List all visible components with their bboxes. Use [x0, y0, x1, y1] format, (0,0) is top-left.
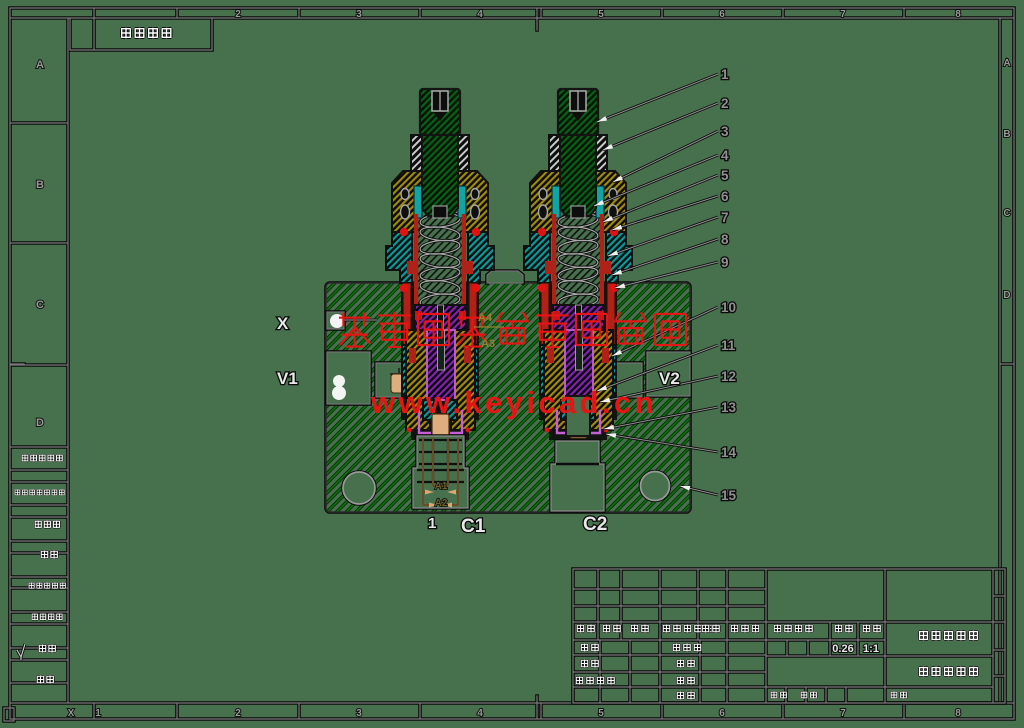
svg-text:13: 13 [721, 400, 737, 415]
svg-text:www.keyicad.cn: www.keyicad.cn [370, 385, 657, 420]
svg-text:4: 4 [721, 148, 729, 163]
svg-text:1: 1 [428, 515, 436, 532]
svg-text:C: C [36, 299, 44, 311]
svg-text:X: X [68, 708, 75, 719]
svg-text:C2: C2 [583, 514, 607, 535]
svg-text:5: 5 [721, 168, 729, 183]
svg-text:X: X [277, 314, 289, 333]
svg-text:5: 5 [598, 708, 604, 719]
svg-text:A4: A4 [478, 312, 493, 324]
svg-text:B: B [1003, 129, 1010, 140]
svg-text:12: 12 [721, 369, 736, 384]
svg-text:1: 1 [95, 708, 101, 719]
svg-text:6: 6 [719, 708, 725, 719]
svg-text:10: 10 [721, 300, 736, 315]
svg-text:A3: A3 [481, 338, 495, 350]
svg-text:4: 4 [477, 9, 483, 20]
svg-text:7: 7 [840, 708, 846, 719]
svg-text:C: C [1003, 208, 1010, 219]
svg-text:3: 3 [721, 124, 729, 139]
svg-text:2: 2 [721, 96, 729, 111]
svg-text:3: 3 [356, 9, 362, 20]
svg-text:1: 1 [721, 67, 729, 82]
svg-text:A2: A2 [435, 498, 448, 509]
svg-text:0.26: 0.26 [832, 643, 853, 655]
svg-text:11: 11 [721, 338, 736, 353]
svg-text:A: A [1003, 58, 1010, 69]
svg-text:D: D [1003, 290, 1010, 301]
svg-text:6: 6 [721, 189, 729, 204]
svg-text:14: 14 [721, 445, 737, 460]
svg-text:7: 7 [840, 9, 846, 20]
svg-text:B: B [36, 179, 44, 191]
svg-text:5: 5 [598, 9, 604, 20]
svg-text:D: D [36, 417, 44, 429]
svg-text:A: A [36, 59, 44, 71]
svg-text:V2: V2 [659, 369, 680, 388]
svg-text:2: 2 [235, 708, 241, 719]
svg-text:8: 8 [721, 232, 729, 247]
svg-text:4: 4 [477, 708, 483, 719]
svg-text:15: 15 [721, 488, 737, 503]
svg-text:9: 9 [721, 255, 729, 270]
svg-text:3: 3 [356, 708, 362, 719]
svg-text:C1: C1 [461, 516, 486, 537]
svg-text:8: 8 [955, 9, 961, 20]
svg-text:7: 7 [721, 210, 729, 225]
svg-text:V1: V1 [277, 369, 298, 388]
svg-text:8: 8 [955, 708, 961, 719]
svg-text:6: 6 [719, 9, 725, 20]
svg-text:A1: A1 [435, 481, 448, 492]
svg-text:1:1: 1:1 [863, 643, 879, 655]
svg-text:2: 2 [235, 9, 241, 20]
